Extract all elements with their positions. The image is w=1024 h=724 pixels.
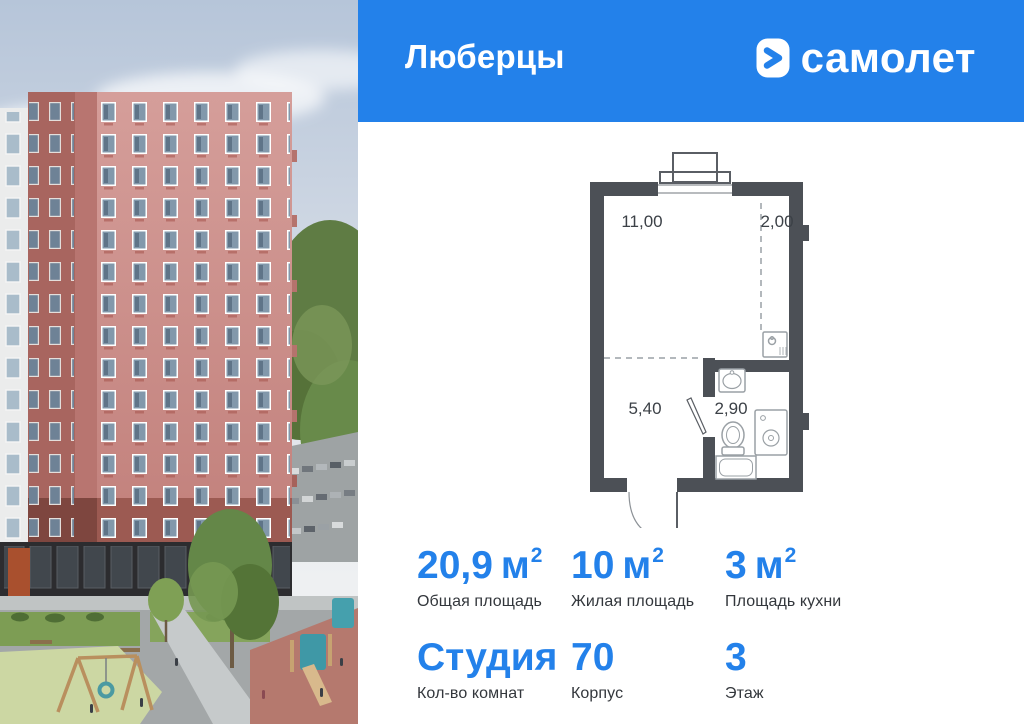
stat-living-area-label: Жилая площадь: [571, 593, 725, 611]
header-bar: Люберцы самолет: [358, 0, 1024, 122]
apartment-stats: 20,9м2 Общая площадь 10м2 Жилая площадь …: [417, 537, 925, 703]
samolet-logo: самолет: [756, 38, 976, 78]
bathtub-icon: [716, 456, 756, 479]
white-building: [0, 108, 28, 560]
project-title: Люберцы: [405, 38, 565, 76]
stat-total-area-value: 20,9м2: [417, 537, 571, 587]
room-label-hallway: 5,40: [628, 399, 661, 418]
stat-floor-label: Этаж: [725, 685, 925, 703]
washbasin-icon: [719, 369, 745, 392]
room-label-bathroom: 2,90: [714, 399, 747, 418]
building-photo-illustration: [0, 0, 358, 724]
listing-card[interactable]: Люберцы самолет: [0, 0, 1024, 724]
entrance-door: [629, 492, 677, 528]
stat-rooms-value: Студия: [417, 637, 571, 679]
building-photo: [0, 0, 358, 724]
kitchen-sink-icon: [763, 332, 787, 357]
stat-building-label: Корпус: [571, 685, 725, 703]
toilet-icon: [722, 422, 744, 455]
floor-plan-drawing: 11,00 2,00 5,40 2,90: [583, 148, 823, 528]
playground-left: [0, 646, 162, 724]
parking-lot: [282, 432, 358, 562]
bathroom-door: [687, 398, 706, 434]
brand-wordmark: самолет: [801, 38, 976, 78]
stat-rooms-label: Кол-во комнат: [417, 685, 571, 703]
stat-rooms: Студия Кол-во комнат: [417, 637, 571, 703]
room-label-kitchen: 2,00: [760, 212, 793, 231]
balcony: [660, 153, 730, 183]
room-label-living: 11,00: [621, 212, 662, 231]
stat-total-area: 20,9м2 Общая площадь: [417, 537, 571, 611]
stat-building: 70 Корпус: [571, 637, 725, 703]
stat-total-area-label: Общая площадь: [417, 593, 571, 611]
washing-machine-icon: [755, 410, 787, 455]
stat-kitchen-area-value: 3м2: [725, 537, 925, 587]
stat-living-area-value: 10м2: [571, 537, 725, 587]
stat-kitchen-area: 3м2 Площадь кухни: [725, 537, 925, 611]
stat-floor: 3 Этаж: [725, 637, 925, 703]
stat-building-value: 70: [571, 637, 725, 679]
samolet-logo-icon: [756, 38, 790, 78]
stat-living-area: 10м2 Жилая площадь: [571, 537, 725, 611]
balcony-door: [658, 185, 732, 193]
stat-floor-value: 3: [725, 637, 925, 679]
floor-plan: 11,00 2,00 5,40 2,90: [583, 148, 823, 528]
stat-kitchen-area-label: Площадь кухни: [725, 593, 925, 611]
